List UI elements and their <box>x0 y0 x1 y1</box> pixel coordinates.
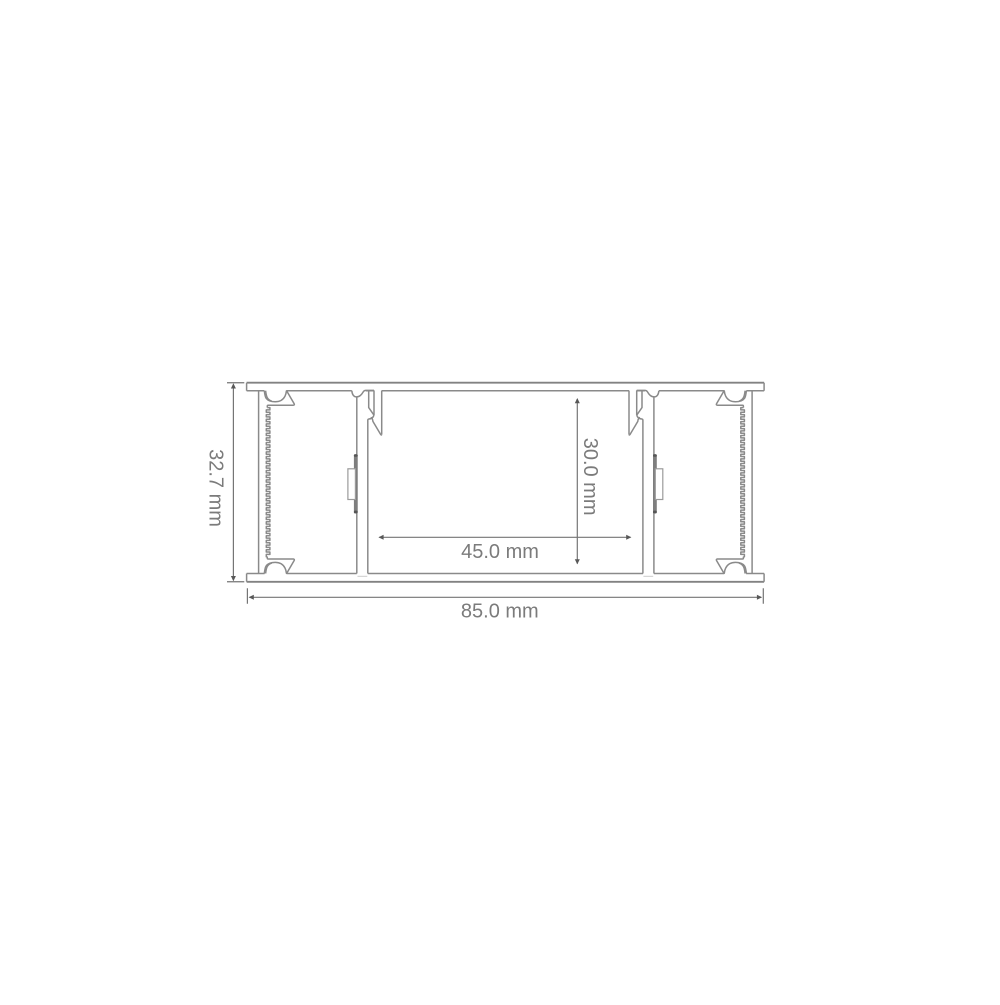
svg-text:32.7 mm: 32.7 mm <box>205 449 227 527</box>
svg-text:45.0 mm: 45.0 mm <box>461 541 539 563</box>
svg-text:85.0 mm: 85.0 mm <box>461 601 539 623</box>
svg-text:30.0 mm: 30.0 mm <box>579 438 601 516</box>
